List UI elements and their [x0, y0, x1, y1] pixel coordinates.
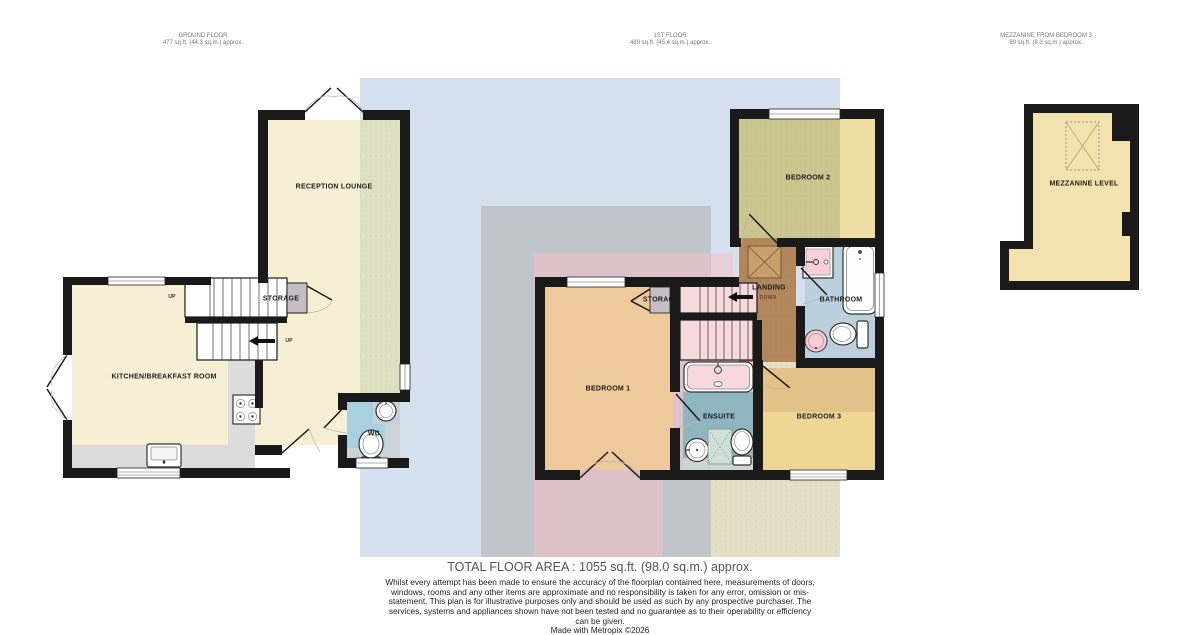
- ensuite-label: ENSUITE: [703, 414, 735, 421]
- wc-label: WC: [368, 431, 380, 438]
- wc-sink-icon: [373, 399, 400, 424]
- first-floor-header: 1ST FLOOR 489 sq.ft. (45.4 sq.m.) approx…: [560, 33, 780, 47]
- ground-floor-header: GROUND FLOOR 477 sq.ft. (44.3 sq.m.) app…: [93, 33, 313, 47]
- first-stairs: [680, 283, 757, 360]
- kitchen-sink-icon: [147, 444, 181, 467]
- mezzanine-label: MEZZANINE LEVEL: [1049, 181, 1118, 188]
- landing-skylight-icon: [748, 246, 781, 278]
- ensuite-toilet-icon: [731, 429, 753, 465]
- bedroom2-label: BEDROOM 2: [786, 175, 831, 182]
- down-label: DOWN: [760, 295, 777, 301]
- first-floor-area: 489 sq.ft. (45.4 sq.m.) approx.: [560, 40, 780, 47]
- ground-floor-title: GROUND FLOOR: [93, 33, 313, 40]
- ensuite-bath-icon: [684, 362, 753, 392]
- kitchen-label: KITCHEN/BREAKFAST ROOM: [111, 374, 216, 381]
- bathroom-round-sink-icon: [805, 330, 827, 352]
- ensuite-sink-icon: [686, 439, 709, 462]
- landing-label: LANDING: [752, 285, 786, 292]
- total-floor-area: TOTAL FLOOR AREA : 1055 sq.ft. (98.0 sq.…: [447, 560, 752, 574]
- bathroom-label: BATHROOM: [820, 297, 863, 304]
- bedroom3-label: BEDROOM 3: [797, 414, 842, 421]
- bedroom1-label: BEDROOM 1: [586, 386, 631, 393]
- mezzanine-plan: [1000, 104, 1139, 290]
- disclaimer-text: Whilst every attempt has been made to en…: [382, 578, 818, 627]
- mezzanine-title: MEZZANINE FROM BEDROOM 3: [936, 33, 1156, 40]
- reception-lounge-label: RECEPTION LOUNGE: [296, 184, 373, 191]
- mezzanine-header: MEZZANINE FROM BEDROOM 3 89 sq.ft. (8.3 …: [936, 33, 1156, 47]
- ensuite-shower-icon: [708, 429, 732, 464]
- mezzanine-area: 89 sq.ft. (8.3 sq.m.) approx.: [936, 40, 1156, 47]
- floorplan-drawing: [0, 0, 1200, 635]
- bathroom-sink-icon: [803, 246, 833, 278]
- storage-ground-label: STORAGE: [263, 296, 299, 303]
- up-label-top: UP: [168, 294, 175, 300]
- floorplan-page: GROUND FLOOR 477 sq.ft. (44.3 sq.m.) app…: [0, 0, 1200, 635]
- up-label-bottom: UP: [285, 338, 292, 344]
- ground-floor-plan: [47, 88, 410, 478]
- storage-first-label: STORAGE: [643, 297, 679, 304]
- ground-floor-area: 477 sq.ft. (44.3 sq.m.) approx.: [93, 40, 313, 47]
- first-floor-title: 1ST FLOOR: [560, 33, 780, 40]
- made-with-text: Made with Metropix ©2026: [551, 625, 650, 635]
